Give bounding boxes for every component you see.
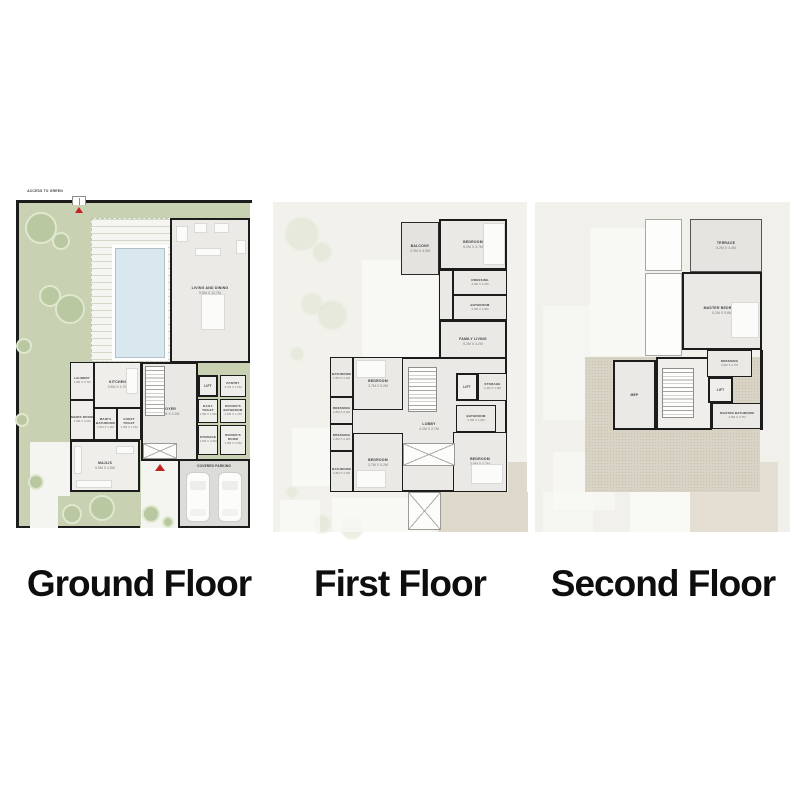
- tree-faint: [285, 485, 299, 499]
- dining-table: [201, 294, 225, 330]
- void: [408, 492, 441, 530]
- second-floor-plan: TERRACE5.2M X 4.4MMASTER BEDROOM5.2M X 5…: [535, 200, 791, 534]
- room-bathroom: BATHROOM1.8M X 2.2M: [330, 357, 353, 397]
- room-label: ACCESS TO GREEN: [27, 189, 63, 193]
- second-floor-title: Second Floor: [535, 561, 791, 607]
- swimming-pool: [115, 248, 165, 358]
- room-dims: 2.9M X 2.7M: [728, 416, 745, 420]
- room-terrace: TERRACE5.2M X 4.4M: [690, 219, 762, 272]
- roof-patch: [508, 462, 527, 493]
- roof-patch: [760, 462, 778, 492]
- room-dims: 2.1M X 1.6M: [224, 386, 241, 390]
- first-floor-title: First Floor: [272, 561, 528, 607]
- wall-segment: [760, 350, 763, 430]
- bed: [731, 302, 759, 338]
- room-dims: 2.0M X 2.4M: [471, 283, 488, 287]
- sofa: [76, 480, 112, 488]
- room-storage: STORAGE2.1M X 1.6M: [478, 373, 507, 401]
- ground-floor-title: Ground Floor: [14, 561, 264, 607]
- room-pantry: PANTRY2.1M X 1.6M: [220, 375, 246, 397]
- ghost-room: [543, 306, 590, 420]
- sofa: [116, 446, 134, 454]
- room-dims: 2.5M X 1.9M: [467, 419, 484, 423]
- room-label: LOBBY: [422, 422, 435, 426]
- room-guest-toilet: GUEST TOILET1.5M X 1.2M: [117, 408, 141, 440]
- open-room: [645, 273, 682, 356]
- ghost-room: [543, 492, 593, 532]
- room-dressing: DRESSING2.9M X 2.7M: [707, 350, 752, 377]
- room-master-bathroom: MASTER BATHROOM2.9M X 2.7M: [712, 403, 762, 429]
- sofa: [176, 226, 188, 242]
- room-daily-toilet: DAILY TOILET1.5M X 1.5M: [198, 399, 218, 423]
- console-table: [195, 248, 221, 256]
- room-mep: MEP: [613, 360, 656, 430]
- first-floor-plan: BALCONY2.0M X 4.3MBEDROOM5.2M X 3.7MDRES…: [272, 200, 528, 534]
- room-label: FAMILY LIVING: [459, 337, 487, 341]
- room-dims: 2.1M X 1.6M: [484, 387, 501, 391]
- room-dims: 1.6M X 2.6M: [199, 440, 216, 444]
- void: [403, 443, 455, 466]
- room-lift: LIFT: [708, 377, 733, 403]
- room-dims: 1.5M X 1.2M: [224, 413, 241, 417]
- tree: [28, 474, 44, 490]
- bed: [356, 360, 386, 378]
- access-to-green-label: ACCESS TO GREEN: [20, 187, 70, 195]
- room-dims: 1.8M X 2.2M: [333, 438, 350, 442]
- tree: [89, 495, 115, 521]
- room-dims: 2.0M X 1.8M: [471, 308, 488, 312]
- roof-patch: [438, 492, 528, 532]
- boundary-wall-left: [16, 200, 19, 528]
- floor-plans-sheet: { "titles": { "ground": "Ground Floor", …: [0, 0, 800, 800]
- boundary-wall-top-right: [86, 200, 252, 203]
- bed: [356, 470, 386, 488]
- tree: [16, 338, 32, 354]
- tree-faint: [289, 346, 305, 362]
- room-dims: 3.8M X 4.7M: [108, 385, 128, 389]
- room-storage: STORAGE1.6M X 2.6M: [198, 425, 218, 455]
- room-dims: 3.7M X 5.2M: [368, 384, 388, 388]
- room-label: BEDROOM: [368, 379, 388, 383]
- staircase: [145, 366, 165, 416]
- room-dims: 1.5M X 1.2M: [120, 426, 137, 430]
- sofa: [194, 223, 207, 233]
- room-lift: LIFT: [198, 375, 218, 397]
- room-dressing: DRESSING2.0M X 2.4M: [453, 270, 507, 295]
- ghost-room: [630, 492, 690, 532]
- tree-faint: [311, 241, 333, 263]
- room-maids-bathroom: MAID'S BATHROOM1.5M X 1.2M: [94, 408, 117, 440]
- sofa: [214, 223, 229, 233]
- access-marker: [75, 207, 83, 213]
- tree: [162, 516, 174, 528]
- room-label: BALCONY: [411, 244, 430, 248]
- room-bathroom: BATHROOM2.5M X 1.9M: [456, 405, 496, 432]
- room-label: LIVING AND DINING: [192, 286, 229, 290]
- room-bathroom: BATHROOM1.8M X 2.2M: [330, 451, 353, 492]
- bed: [471, 464, 503, 484]
- room-dims: 1.8M X 2.2M: [333, 472, 350, 476]
- staircase: [662, 368, 694, 418]
- ground-floor-plan: ACCESS TO GREENLIVING AND DINING5.5M X 1…: [14, 196, 264, 534]
- room-dims: 2.9M X 2.7M: [721, 364, 738, 368]
- room-bathroom: BATHROOM2.0M X 1.8M: [453, 295, 507, 320]
- room-dims: 1.8M X 2.2M: [333, 377, 350, 381]
- tree: [142, 505, 160, 523]
- room-label: LIFT: [717, 388, 725, 392]
- room-dims: 1.9M X 3.2M: [73, 420, 90, 424]
- room-dressing: DRESSING1.8M X 2.2M: [330, 424, 353, 451]
- room-dims: 5.2M X 3.7M: [463, 245, 483, 249]
- tree: [52, 232, 70, 250]
- garden-gate: [72, 196, 86, 205]
- room-dims: 1.9M X 2.6M: [224, 442, 241, 446]
- room-label: TERRACE: [717, 241, 735, 245]
- car: [218, 472, 242, 522]
- bed: [483, 223, 505, 265]
- room-label: BEDROOM: [368, 458, 388, 462]
- boundary-wall-top-left: [16, 200, 72, 203]
- tree-faint: [316, 299, 348, 331]
- room-dims: 5.2M X 4.4M: [716, 246, 736, 250]
- room-dims: 4.2M X 2.7M: [419, 427, 439, 431]
- room-drivers-bathroom: DRIVER'S BATHROOM1.5M X 1.2M: [220, 399, 246, 423]
- room-dims: 1.5M X 1.2M: [97, 426, 114, 430]
- tree: [15, 413, 29, 427]
- car: [186, 472, 210, 522]
- ghost-room: [280, 500, 320, 532]
- entry-canopy: [143, 443, 177, 459]
- open-room: [645, 219, 682, 271]
- room-label: MAJLIS: [98, 461, 112, 465]
- tree: [55, 294, 85, 324]
- armchair: [236, 240, 246, 254]
- room-dims: 2.0M X 4.3M: [410, 249, 430, 253]
- room-dims: 1.6M X 2.7M: [73, 381, 90, 385]
- room-lobby: LOBBY4.2M X 2.7M: [403, 413, 455, 440]
- room-balcony: BALCONY2.0M X 4.3M: [401, 222, 439, 275]
- hallway: [439, 270, 453, 320]
- room-dressing: DRESSING1.8M X 2.2M: [330, 397, 353, 424]
- room-label: KITCHEN: [109, 380, 126, 384]
- room-drivers-room: DRIVER'S ROOM1.9M X 2.6M: [220, 425, 246, 455]
- sofa: [74, 446, 82, 474]
- ghost-room: [590, 228, 646, 356]
- staircase: [408, 367, 437, 412]
- tree: [62, 504, 82, 524]
- room-label: COVERED PARKING: [197, 464, 231, 468]
- roof-patch: [690, 492, 778, 532]
- room-label: MEP: [631, 393, 639, 397]
- room-dims: 5.5M X 4.5M: [95, 466, 115, 470]
- room-dims: 3.7M X 5.2M: [368, 463, 388, 467]
- room-dims: 5.2M X 5.8M: [712, 311, 732, 315]
- room-laundry: LAUNDRY1.6M X 2.7M: [70, 362, 94, 400]
- entrance-marker: [155, 464, 165, 471]
- room-dims: 1.5M X 1.5M: [199, 413, 216, 417]
- room-label: BEDROOM: [463, 240, 483, 244]
- kitchen-island: [126, 368, 138, 394]
- room-label: LIFT: [463, 385, 471, 389]
- room-dims: 1.8M X 2.2M: [333, 411, 350, 415]
- room-maids: MAIDS ROOM1.9M X 3.2M: [70, 400, 94, 440]
- room-label: BEDROOM: [470, 457, 490, 461]
- room-lift: LIFT: [456, 373, 478, 401]
- room-label: LIFT: [204, 384, 212, 388]
- room-dims: 5.2M X 4.2M: [463, 342, 483, 346]
